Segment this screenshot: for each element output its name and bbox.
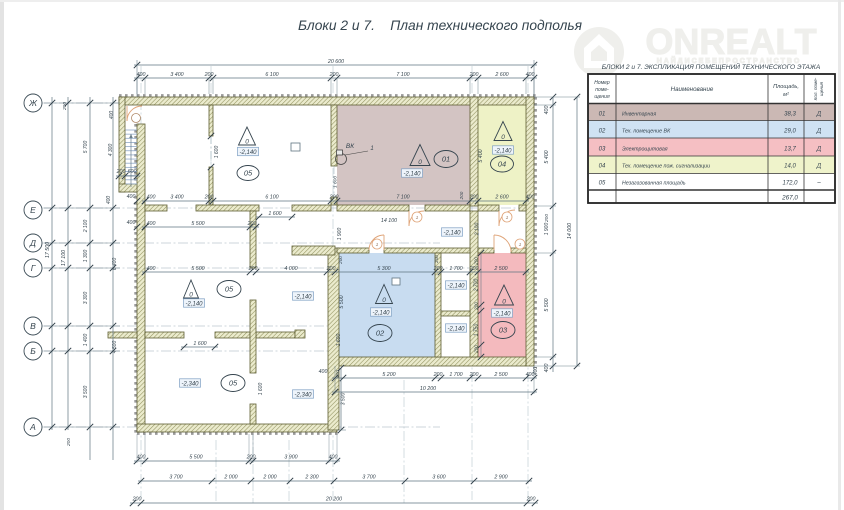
svg-text:5 500: 5 500 xyxy=(191,266,204,272)
svg-text:–: – xyxy=(816,181,821,187)
svg-text:400: 400 xyxy=(109,111,115,120)
svg-text:14 000: 14 000 xyxy=(567,223,573,239)
svg-text:01: 01 xyxy=(599,112,606,118)
svg-text:1 600: 1 600 xyxy=(193,341,206,347)
svg-text:5 500: 5 500 xyxy=(189,454,202,460)
svg-text:0: 0 xyxy=(418,159,422,166)
svg-text:Д: Д xyxy=(816,147,822,153)
svg-text:1: 1 xyxy=(370,146,373,152)
svg-text:3 300: 3 300 xyxy=(83,292,89,305)
svg-text:щения: щения xyxy=(819,81,824,96)
svg-text:-2,140: -2,140 xyxy=(372,310,390,316)
svg-text:Незагазованная площадь: Незагазованная площадь xyxy=(622,181,686,187)
svg-text:200: 200 xyxy=(204,195,214,201)
svg-text:ВК: ВК xyxy=(346,143,355,150)
svg-text:200: 200 xyxy=(338,256,343,265)
svg-text:400: 400 xyxy=(137,72,146,78)
svg-text:Е: Е xyxy=(30,205,36,215)
svg-text:Блоки 2 и 7. План техническ: Блоки 2 и 7. План технического подполья xyxy=(298,18,583,33)
svg-text:Тех. помещение ВК: Тех. помещение ВК xyxy=(622,129,671,135)
svg-text:200: 200 xyxy=(66,438,72,447)
svg-text:02: 02 xyxy=(599,129,606,135)
svg-text:400: 400 xyxy=(533,367,539,376)
svg-text:5 200: 5 200 xyxy=(382,372,395,378)
svg-text:267,0: 267,0 xyxy=(781,195,798,202)
svg-text:1 600: 1 600 xyxy=(333,176,339,188)
svg-text:7 100: 7 100 xyxy=(396,72,409,78)
svg-text:7 100: 7 100 xyxy=(396,195,409,201)
svg-text:6 400: 6 400 xyxy=(112,258,118,271)
svg-text:4 300: 4 300 xyxy=(108,144,114,157)
svg-text:5 500: 5 500 xyxy=(191,221,204,227)
svg-text:05: 05 xyxy=(599,181,606,187)
svg-text:17 500: 17 500 xyxy=(45,242,51,258)
svg-text:03: 03 xyxy=(499,326,508,335)
svg-text:200: 200 xyxy=(469,372,479,378)
svg-text:200: 200 xyxy=(204,72,214,78)
svg-text:1 900: 1 900 xyxy=(337,228,343,241)
svg-text:200: 200 xyxy=(329,195,339,201)
svg-text:4 500: 4 500 xyxy=(112,341,118,354)
svg-text:1 600: 1 600 xyxy=(268,211,281,217)
svg-text:38,3: 38,3 xyxy=(784,112,796,118)
svg-text:3 600: 3 600 xyxy=(432,474,445,480)
svg-text:2 600: 2 600 xyxy=(494,72,508,78)
svg-text:0: 0 xyxy=(382,297,386,304)
svg-text:200: 200 xyxy=(62,102,68,111)
svg-text:05: 05 xyxy=(244,169,253,178)
svg-text:-2,140: -2,140 xyxy=(493,311,511,317)
svg-text:3 900: 3 900 xyxy=(284,454,297,460)
svg-text:200: 200 xyxy=(248,266,258,272)
svg-text:-2,140: -2,140 xyxy=(443,230,461,236)
svg-text:200: 200 xyxy=(526,496,536,502)
svg-text:3 400: 3 400 xyxy=(170,72,183,78)
svg-text:Ж: Ж xyxy=(28,98,38,108)
svg-text:400: 400 xyxy=(335,370,340,378)
svg-text:А: А xyxy=(29,422,36,432)
svg-text:1 400: 1 400 xyxy=(83,334,89,347)
svg-text:5 500: 5 500 xyxy=(339,295,345,308)
svg-text:200: 200 xyxy=(469,72,479,78)
svg-text:4 000: 4 000 xyxy=(284,266,297,272)
svg-text:-2,140: -2,140 xyxy=(447,326,465,332)
svg-text:-2,140: -2,140 xyxy=(239,150,257,156)
svg-text:Б: Б xyxy=(30,346,36,356)
svg-text:400: 400 xyxy=(106,196,112,205)
svg-text:20 200: 20 200 xyxy=(325,496,342,502)
svg-text:05: 05 xyxy=(225,285,234,294)
svg-text:200: 200 xyxy=(326,266,336,272)
svg-text:05: 05 xyxy=(229,379,238,388)
svg-text:Площадь,: Площадь, xyxy=(773,84,799,90)
svg-text:14,0: 14,0 xyxy=(784,164,796,170)
svg-text:3 700: 3 700 xyxy=(362,474,375,480)
svg-text:17 100: 17 100 xyxy=(61,250,67,266)
svg-text:1 600: 1 600 xyxy=(336,334,342,347)
svg-text:-2,140: -2,140 xyxy=(447,283,465,289)
svg-text:400: 400 xyxy=(147,195,156,201)
svg-text:0: 0 xyxy=(189,292,193,299)
svg-text:400: 400 xyxy=(137,454,146,460)
svg-text:2 900: 2 900 xyxy=(493,474,507,480)
svg-text:щения: щения xyxy=(594,94,610,100)
svg-text:Тех. помещение пож. сигнализац: Тех. помещение пож. сигнализации xyxy=(622,164,710,170)
svg-text:Кол. поме-: Кол. поме- xyxy=(813,77,818,100)
svg-text:400: 400 xyxy=(329,454,338,460)
svg-text:200: 200 xyxy=(469,266,479,272)
svg-text:200: 200 xyxy=(469,195,479,201)
svg-text:6 100: 6 100 xyxy=(265,195,278,201)
svg-text:200: 200 xyxy=(544,214,550,223)
svg-text:1 900: 1 900 xyxy=(544,223,550,236)
svg-text:поме-: поме- xyxy=(595,87,609,93)
svg-text:02: 02 xyxy=(376,329,385,338)
svg-text:29,0: 29,0 xyxy=(783,129,796,135)
svg-text:2 500: 2 500 xyxy=(493,372,507,378)
svg-text:2 700: 2 700 xyxy=(474,279,480,293)
svg-text:3 700: 3 700 xyxy=(169,474,182,480)
svg-text:600: 600 xyxy=(128,169,137,175)
svg-text:Номер: Номер xyxy=(594,80,610,86)
svg-text:2 000: 2 000 xyxy=(223,474,237,480)
svg-text:400: 400 xyxy=(319,369,328,375)
svg-text:200: 200 xyxy=(329,72,339,78)
svg-text:1 700: 1 700 xyxy=(449,372,462,378)
svg-text:1 600: 1 600 xyxy=(214,146,220,159)
svg-text:2 100: 2 100 xyxy=(83,220,89,234)
svg-text:2 300: 2 300 xyxy=(304,474,318,480)
svg-text:-2,140: -2,140 xyxy=(294,294,312,300)
svg-text:20 600: 20 600 xyxy=(327,59,344,65)
svg-text:04: 04 xyxy=(599,164,606,170)
svg-text:03: 03 xyxy=(599,147,606,153)
svg-text:ONREALT: ONREALT xyxy=(645,21,816,62)
svg-text:1 300: 1 300 xyxy=(83,250,89,263)
svg-text:200: 200 xyxy=(459,191,464,200)
svg-text:-2,140: -2,140 xyxy=(494,148,512,154)
svg-text:400: 400 xyxy=(127,220,136,226)
svg-text:3 500: 3 500 xyxy=(341,393,347,406)
svg-text:01: 01 xyxy=(442,155,450,164)
svg-text:1 750: 1 750 xyxy=(474,324,480,337)
svg-text:200: 200 xyxy=(433,372,443,378)
svg-text:400: 400 xyxy=(544,364,550,373)
svg-text:200: 200 xyxy=(434,255,439,264)
svg-text:400: 400 xyxy=(127,194,136,200)
svg-text:5 400: 5 400 xyxy=(544,150,550,163)
svg-text:200: 200 xyxy=(246,454,256,460)
svg-text:Электрощитовая: Электрощитовая xyxy=(622,147,668,153)
svg-text:400: 400 xyxy=(526,195,535,201)
svg-text:200: 200 xyxy=(132,496,142,502)
svg-text:10 200: 10 200 xyxy=(420,386,436,392)
svg-text:-2,340: -2,340 xyxy=(294,392,312,398)
svg-text:В: В xyxy=(30,321,36,331)
svg-text:-2,140: -2,140 xyxy=(185,301,203,307)
svg-text:3 500: 3 500 xyxy=(83,386,89,399)
svg-text:2 000: 2 000 xyxy=(262,474,276,480)
svg-text:Д: Д xyxy=(816,112,822,118)
svg-text:04: 04 xyxy=(498,160,506,169)
svg-text:3 400: 3 400 xyxy=(170,195,183,201)
svg-text:-2,340: -2,340 xyxy=(181,381,199,387)
svg-text:200: 200 xyxy=(116,169,126,175)
svg-text:200: 200 xyxy=(247,221,257,227)
svg-text:13,7: 13,7 xyxy=(784,147,796,153)
svg-text:400: 400 xyxy=(544,106,550,115)
svg-text:Наименование: Наименование xyxy=(671,86,714,93)
svg-text:0: 0 xyxy=(245,139,249,146)
svg-text:БЛОКИ 2 и 7. ЭКСПЛИКАЦИЯ ПОМ: БЛОКИ 2 и 7. ЭКСПЛИКАЦИЯ ПОМЕЩЕНИЙ ТЕХНИ… xyxy=(602,62,821,71)
svg-text:400: 400 xyxy=(526,72,535,78)
svg-text:-2,140: -2,140 xyxy=(403,171,421,177)
svg-text:1 700: 1 700 xyxy=(449,266,462,272)
svg-text:Д: Д xyxy=(29,238,36,248)
svg-text:5 300: 5 300 xyxy=(377,266,390,272)
svg-text:200: 200 xyxy=(474,345,479,354)
svg-text:2 500: 2 500 xyxy=(493,266,507,272)
svg-text:0: 0 xyxy=(501,134,505,141)
svg-text:Д: Д xyxy=(816,164,822,170)
svg-text:200: 200 xyxy=(433,266,443,272)
svg-text:5 500: 5 500 xyxy=(544,298,550,311)
svg-text:200: 200 xyxy=(474,257,479,266)
svg-text:5 400: 5 400 xyxy=(478,149,484,162)
svg-text:6 100: 6 100 xyxy=(265,72,278,78)
svg-text:2 100: 2 100 xyxy=(475,223,481,237)
svg-text:200: 200 xyxy=(474,302,479,311)
svg-text:14 100: 14 100 xyxy=(381,218,397,224)
svg-text:Инвентарная: Инвентарная xyxy=(622,112,656,118)
svg-text:400: 400 xyxy=(147,266,156,272)
svg-text:5 700: 5 700 xyxy=(83,141,89,154)
svg-text:172,0: 172,0 xyxy=(782,181,798,187)
svg-text:2 600: 2 600 xyxy=(494,195,508,201)
svg-text:Д: Д xyxy=(816,129,822,135)
svg-text:0: 0 xyxy=(502,299,506,306)
svg-text:1 600: 1 600 xyxy=(258,383,264,396)
